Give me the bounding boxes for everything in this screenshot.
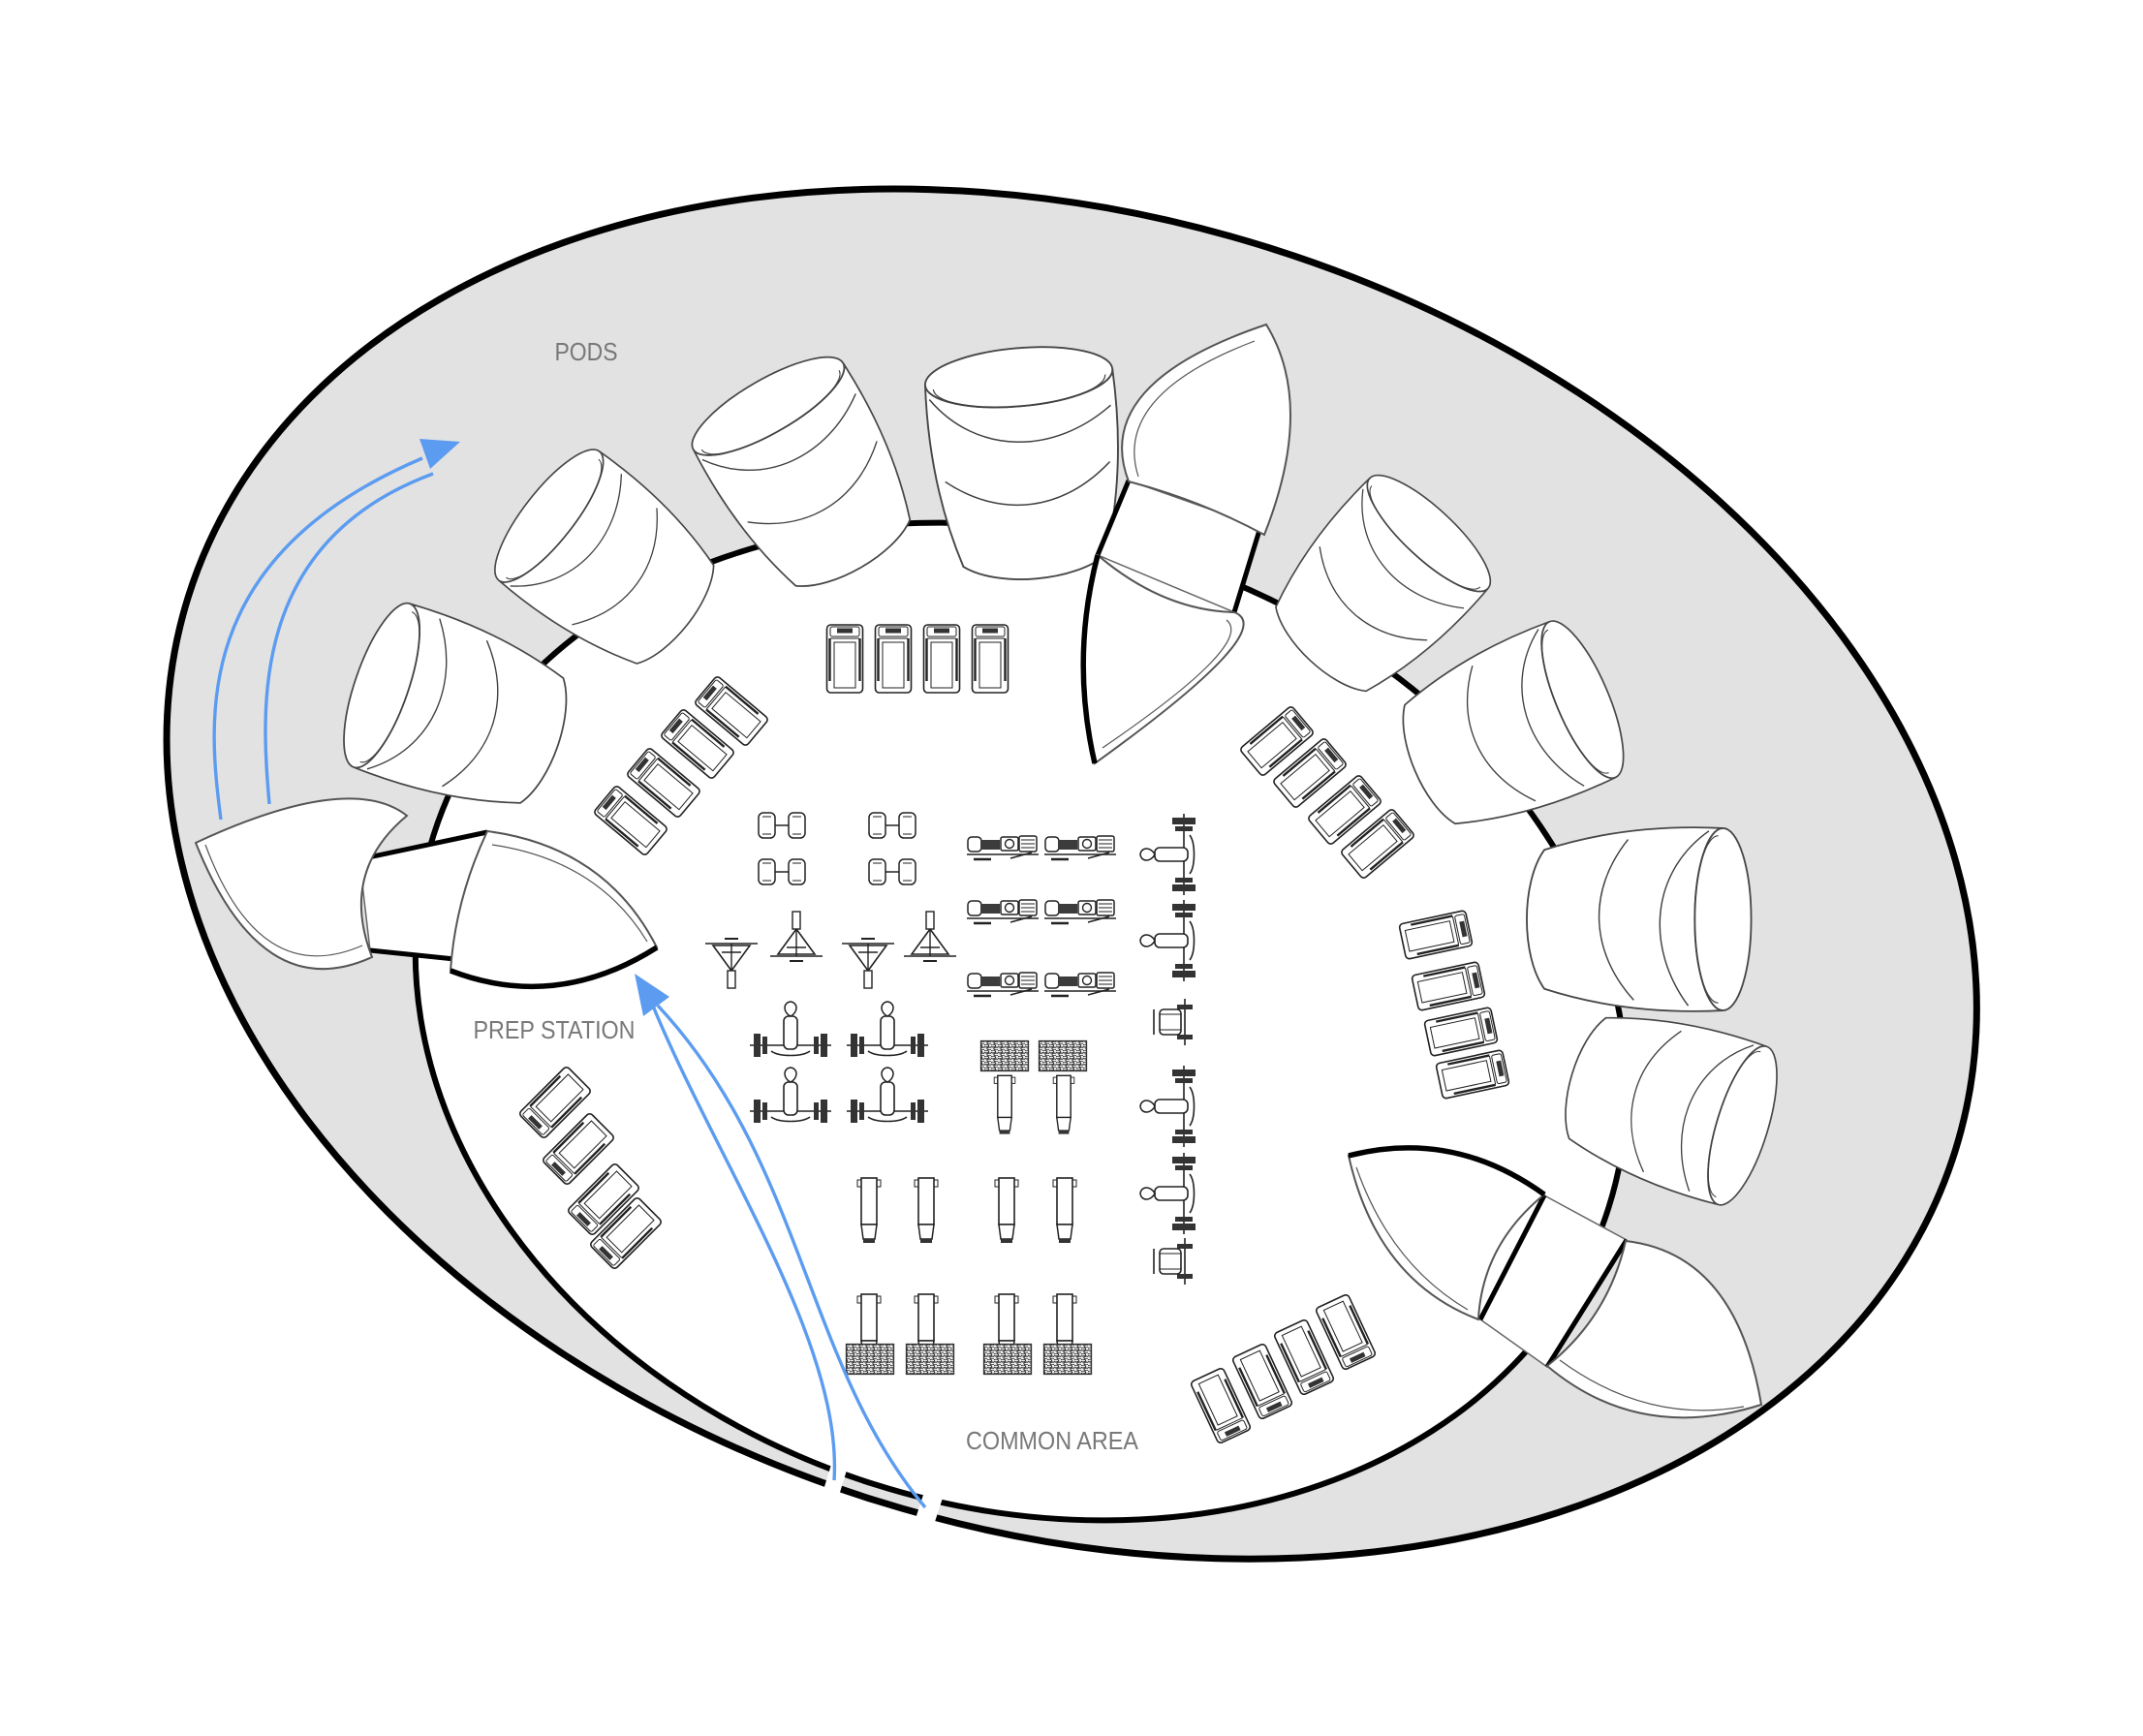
svg-text:COMMON AREA: COMMON AREA [966,1426,1139,1455]
svg-text:PODS: PODS [555,337,618,366]
svg-text:PREP STATION: PREP STATION [474,1015,636,1044]
